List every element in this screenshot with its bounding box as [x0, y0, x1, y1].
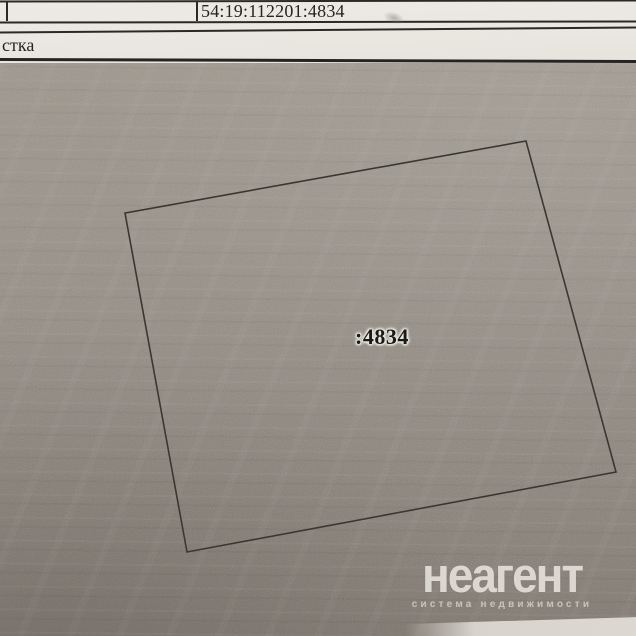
- watermark-brand: неагент: [399, 556, 605, 594]
- cropped-word-uchastka: стка: [2, 34, 34, 57]
- parcel-drawing: [0, 0, 636, 636]
- document-header: 54:19:112201:4834 стка: [0, 0, 636, 63]
- table-row-divider-2: [0, 26, 636, 33]
- cadastral-document-photo: :4834 54:19:112201:4834 стка неагент сис…: [0, 0, 636, 636]
- table-cell-divider: [196, 2, 198, 21]
- paper-smudge: [382, 9, 407, 27]
- parcel-number-label: :4834: [355, 324, 409, 350]
- table-border-bottom: [0, 58, 636, 63]
- watermark: неагент система недвижимости: [399, 558, 605, 610]
- cadastral-number: 54:19:112201:4834: [201, 2, 345, 21]
- table-cell-border-left: [6, 2, 8, 21]
